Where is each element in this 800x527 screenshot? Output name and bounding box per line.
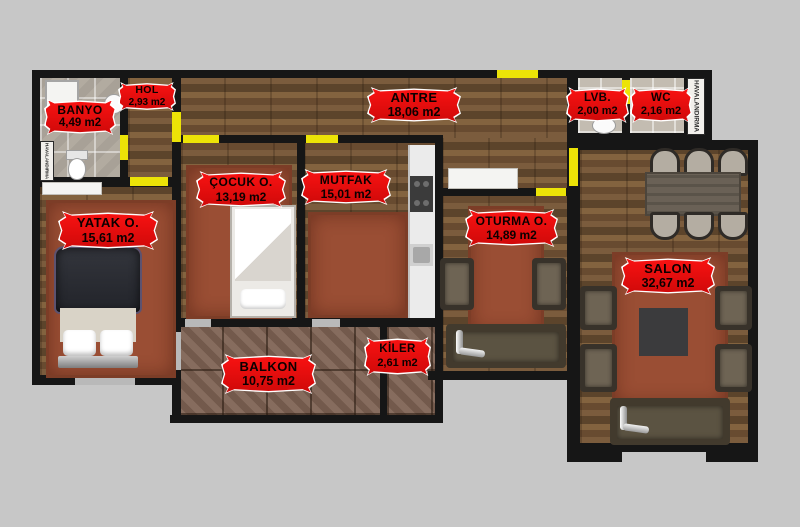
kitchen-sink xyxy=(410,244,433,266)
sink-basin xyxy=(413,247,430,263)
badge-area: 32,67 m2 xyxy=(642,276,695,291)
toilet xyxy=(68,158,86,180)
room-badge-wc: WC2,16 m2 xyxy=(630,87,692,123)
badge-area: 4,49 m2 xyxy=(59,117,101,131)
pillow xyxy=(63,330,96,356)
badge-name: WC xyxy=(651,92,671,106)
coffee-table xyxy=(639,308,688,356)
badge-area: 10,75 m2 xyxy=(242,374,295,389)
badge-area: 2,16 m2 xyxy=(641,105,681,118)
room-badge-cocuk: ÇOCUK O.13,19 m2 xyxy=(196,171,286,208)
wall-segment xyxy=(32,70,710,78)
dining-table xyxy=(645,172,741,216)
door-marker xyxy=(120,135,128,160)
badge-name: LVB. xyxy=(584,92,611,106)
wardrobe xyxy=(42,182,102,195)
badge-name: HOL xyxy=(135,84,158,96)
door-marker xyxy=(569,148,578,186)
sofa xyxy=(446,324,566,368)
cushion xyxy=(585,291,612,325)
badge-area: 2,93 m2 xyxy=(129,97,166,109)
badge-name: ÇOCUK O. xyxy=(209,175,272,189)
room-badge-kiler: KİLER2,61 m2 xyxy=(364,337,431,376)
wall-segment xyxy=(428,371,580,380)
cushion xyxy=(585,349,612,387)
room-badge-hol: HOL2,93 m2 xyxy=(118,82,176,111)
pillow xyxy=(100,330,133,356)
room-badge-antre: ANTRE18,06 m2 xyxy=(367,87,461,123)
door-marker xyxy=(183,135,219,143)
chrome-faucet-decor xyxy=(456,330,490,360)
badge-name: YATAK O. xyxy=(77,215,139,230)
burner xyxy=(423,181,429,187)
bed-blanket xyxy=(235,209,291,281)
badge-name: MUTFAK xyxy=(320,173,372,187)
vent-label-left: HAVALANDIRMA xyxy=(45,143,50,179)
door-marker xyxy=(172,112,181,142)
wall-segment xyxy=(32,70,40,385)
room-badge-salon: SALON32,67 m2 xyxy=(621,257,715,295)
badge-area: 15,61 m2 xyxy=(82,231,135,246)
window-gap xyxy=(185,319,211,327)
armchair xyxy=(580,286,617,330)
bed-footboard xyxy=(58,356,138,368)
armchair xyxy=(715,344,752,392)
badge-name: KİLER xyxy=(379,343,416,357)
sofa xyxy=(610,398,730,445)
room-badge-mutfak: MUTFAK15,01 m2 xyxy=(301,169,391,205)
room-badge-lvb: LVB.2,00 m2 xyxy=(566,87,629,123)
door-marker xyxy=(497,70,538,78)
badge-name: ANTRE xyxy=(391,90,438,105)
floor-plan: HAVALANDIRMA HAVALANDIRMA xyxy=(0,0,800,527)
burner xyxy=(414,200,420,206)
wall-segment xyxy=(706,443,758,462)
cushion xyxy=(445,263,469,305)
armchair xyxy=(580,344,617,392)
cushion xyxy=(537,263,561,305)
vent-shaft-left: HAVALANDIRMA xyxy=(40,141,54,181)
badge-name: SALON xyxy=(644,261,692,276)
burner xyxy=(423,200,429,206)
badge-name: BALKON xyxy=(239,359,297,374)
badge-area: 18,06 m2 xyxy=(388,105,441,120)
badge-name: OTURMA O. xyxy=(476,214,548,228)
area-rug xyxy=(308,212,408,318)
stove xyxy=(410,176,433,212)
badge-area: 2,61 m2 xyxy=(377,357,417,370)
dining-chair xyxy=(684,212,714,240)
wall-segment xyxy=(567,443,622,462)
door-marker xyxy=(536,188,566,196)
burner xyxy=(414,181,420,187)
dining-chair xyxy=(650,212,680,240)
room-badge-banyo: BANYO4,49 m2 xyxy=(44,99,116,135)
door-marker xyxy=(130,177,168,186)
cushion xyxy=(720,349,747,387)
badge-area: 14,89 m2 xyxy=(486,228,537,242)
armchair xyxy=(440,258,474,310)
chrome-faucet-decor xyxy=(620,406,654,436)
vent-label-right: HAVALANDIRMA xyxy=(693,80,700,132)
badge-area: 15,01 m2 xyxy=(321,187,372,201)
wall-segment xyxy=(172,318,438,327)
window-gap xyxy=(312,319,340,327)
wall-segment xyxy=(567,142,580,462)
double-bed xyxy=(56,248,140,368)
wardrobe xyxy=(448,168,518,189)
badge-area: 13,19 m2 xyxy=(216,190,267,204)
cushion xyxy=(720,291,747,325)
single-bed xyxy=(230,205,296,318)
room-badge-oturma: OTURMA O.14,89 m2 xyxy=(465,209,558,247)
kitchen-counter xyxy=(408,145,435,318)
room-badge-balkon: BALKON10,75 m2 xyxy=(221,354,316,394)
room-badge-yatak: YATAK O.15,61 m2 xyxy=(58,211,158,250)
badge-area: 2,00 m2 xyxy=(577,105,617,118)
dining-chair xyxy=(718,212,748,240)
pillow xyxy=(240,289,286,309)
duvet xyxy=(56,248,140,312)
door-marker xyxy=(306,135,338,143)
badge-name: BANYO xyxy=(57,103,102,117)
window-gap xyxy=(75,377,135,385)
armchair xyxy=(532,258,566,310)
wall-segment xyxy=(170,415,438,423)
wall-segment xyxy=(297,143,305,318)
armchair xyxy=(715,286,752,330)
